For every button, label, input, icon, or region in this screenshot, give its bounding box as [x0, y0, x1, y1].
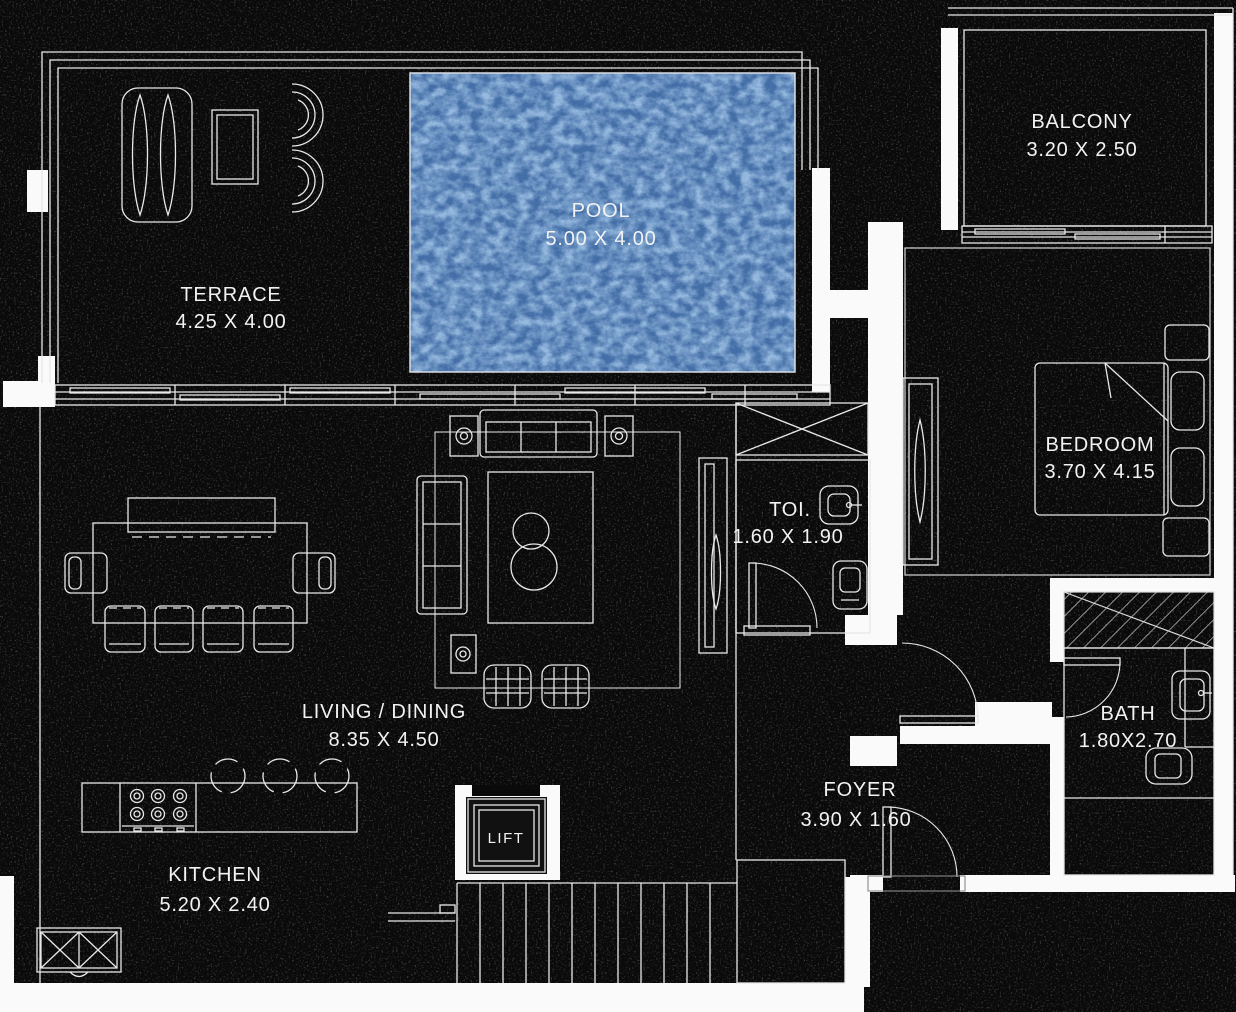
kitchen-dims: 5.20 X 2.40 — [159, 894, 270, 916]
wall — [1050, 717, 1064, 880]
floor-plan: TERRACE 4.25 X 4.00 POOL 5.00 X 4.00 BAL… — [0, 0, 1236, 1012]
living-dining-label: LIVING / DINING — [302, 701, 466, 723]
lift-label: LIFT — [488, 830, 525, 847]
toi-label: TOI. — [769, 499, 811, 521]
wall — [826, 290, 874, 318]
pool-area — [410, 73, 795, 372]
balcony-dims: 3.20 X 2.50 — [1026, 139, 1137, 161]
balcony-label: BALCONY — [1031, 111, 1132, 133]
terrace-label: TERRACE — [180, 284, 281, 306]
wall — [14, 983, 864, 1012]
wall — [3, 381, 55, 407]
bath-label: BATH — [1100, 703, 1155, 725]
foyer-dims: 3.90 X 1.60 — [800, 809, 911, 831]
bedroom-dims: 3.70 X 4.15 — [1044, 461, 1155, 483]
terrace-dims: 4.25 X 4.00 — [175, 311, 286, 333]
wall — [845, 877, 870, 987]
wall — [975, 702, 1052, 728]
foyer-label: FOYER — [824, 779, 897, 801]
wall — [27, 170, 48, 212]
kitchen-label: KITCHEN — [168, 864, 261, 886]
floor-plan-svg: TERRACE 4.25 X 4.00 POOL 5.00 X 4.00 BAL… — [0, 0, 1236, 1012]
shaft-hatch — [1064, 592, 1214, 648]
wall — [0, 876, 14, 1012]
wall — [1050, 578, 1233, 592]
toi-dims: 1.60 X 1.90 — [732, 526, 843, 548]
bath-dims: 1.80X2.70 — [1079, 730, 1177, 752]
wall — [900, 726, 1055, 744]
wall — [1214, 13, 1233, 892]
wall — [845, 615, 897, 645]
wall — [941, 28, 958, 230]
bedroom-label: BEDROOM — [1046, 434, 1155, 456]
wall — [1050, 590, 1064, 662]
pool-dims: 5.00 X 4.00 — [545, 228, 656, 250]
wall — [812, 168, 830, 392]
pool-label: POOL — [572, 200, 631, 222]
wall — [868, 222, 903, 615]
wall — [38, 356, 55, 383]
wall — [960, 875, 1235, 892]
wall — [850, 736, 897, 766]
living-dining-dims: 8.35 X 4.50 — [328, 729, 439, 751]
